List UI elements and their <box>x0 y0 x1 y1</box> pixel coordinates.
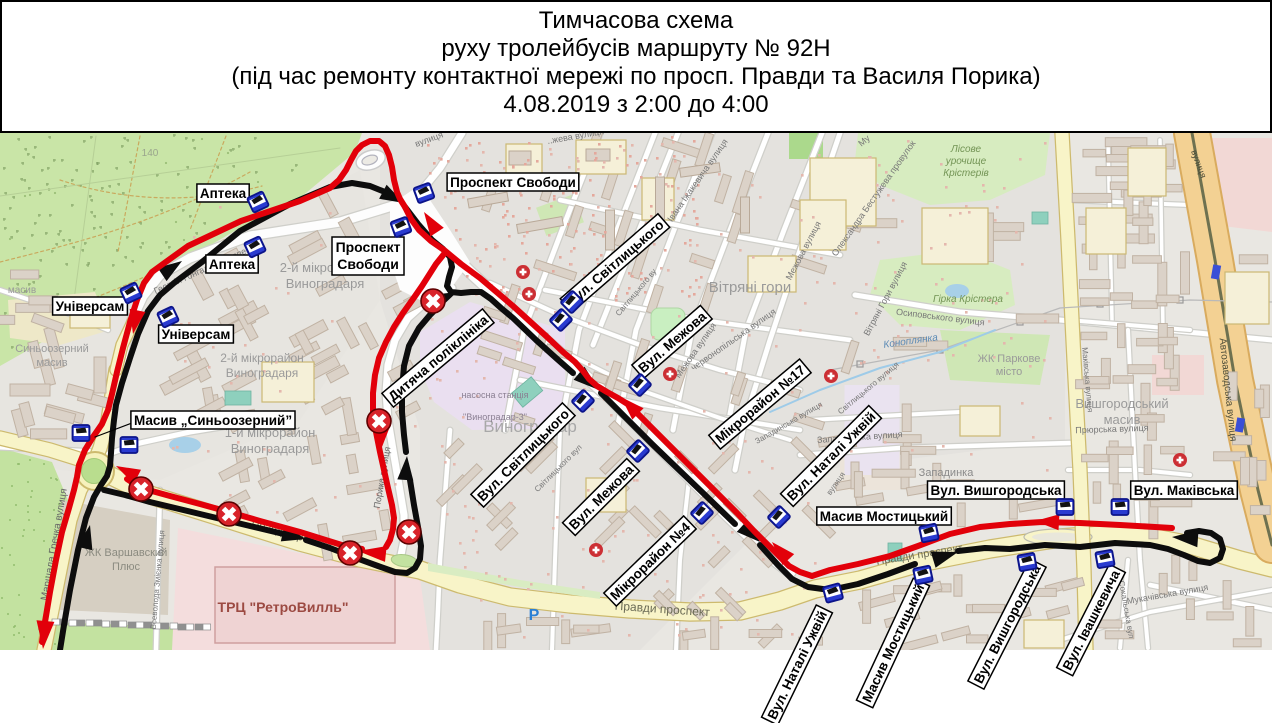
svg-text:P: P <box>529 607 540 624</box>
svg-text:Свободи: Свободи <box>337 256 399 272</box>
svg-text:Універсам: Універсам <box>162 327 231 342</box>
svg-text:ТРЦ "РетроВилль": ТРЦ "РетроВилль" <box>218 599 349 615</box>
svg-text:"Виноградар-3": "Виноградар-3" <box>463 412 527 422</box>
svg-text:140: 140 <box>142 148 159 159</box>
svg-text:Виноградаря: Виноградаря <box>226 366 298 380</box>
svg-text:Аптека: Аптека <box>209 257 256 272</box>
svg-text:Западинка: Западинка <box>919 467 975 479</box>
svg-text:масив: масив <box>8 285 36 296</box>
svg-text:Вул. Вишгородська: Вул. Вишгородська <box>931 483 1062 498</box>
svg-text:Вітряні гори: Вітряні гори <box>709 279 792 296</box>
svg-text:ЖК Паркове: ЖК Паркове <box>978 353 1041 365</box>
svg-text:Виноградаря: Виноградаря <box>231 441 309 456</box>
svg-text:Лісове: Лісове <box>950 144 982 155</box>
svg-text:Синьоозерний: Синьоозерний <box>15 343 89 355</box>
svg-text:Масив Мостицький: Масив Мостицький <box>820 509 948 524</box>
svg-text:Плюс: Плюс <box>112 561 141 573</box>
svg-text:урочище: урочище <box>945 156 987 167</box>
svg-text:Універсам: Універсам <box>56 299 125 314</box>
svg-text:Проспект: Проспект <box>336 239 401 255</box>
svg-text:Крістерів: Крістерів <box>943 168 989 179</box>
svg-text:Вул. Маківська: Вул. Маківська <box>1134 483 1235 498</box>
svg-text:насосна станція: насосна станція <box>461 390 528 400</box>
svg-text:Проспект Свободи: Проспект Свободи <box>450 175 576 190</box>
svg-text:Аптека: Аптека <box>200 186 247 201</box>
svg-text:масив: масив <box>36 357 67 369</box>
svg-text:місто: місто <box>996 366 1023 378</box>
svg-text:Виноградаря: Виноградаря <box>286 276 364 291</box>
svg-text:Гірка Крістера: Гірка Крістера <box>933 294 1003 305</box>
svg-text:Масив „Синьоозерний”: Масив „Синьоозерний” <box>134 413 292 428</box>
svg-text:2-й мікрорайон: 2-й мікрорайон <box>220 351 304 365</box>
